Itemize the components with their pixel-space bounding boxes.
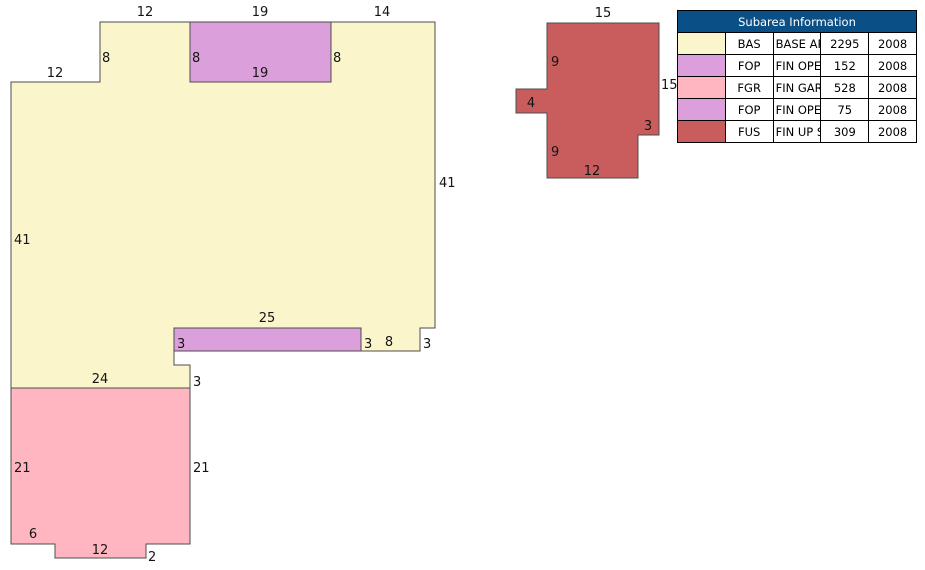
- dimension-label: 41: [439, 176, 456, 191]
- dimension-label: 8: [192, 51, 200, 66]
- subarea-color-swatch: [678, 33, 726, 55]
- dimension-label: 21: [14, 461, 31, 476]
- subarea-description: FIN OPEN PORCH: [773, 99, 821, 121]
- subarea-color-swatch: [678, 121, 726, 143]
- subarea-area: 2295: [821, 33, 869, 55]
- subarea-area: 152: [821, 55, 869, 77]
- dimension-label: 4: [527, 96, 535, 111]
- subarea-table: Subarea Information BASBASE AREA22952008…: [677, 10, 917, 143]
- dimension-label: 14: [374, 5, 391, 20]
- dimension-label: 8: [385, 335, 393, 350]
- subarea-row-bas: BASBASE AREA22952008: [678, 33, 917, 55]
- dimension-label: 6: [29, 527, 37, 542]
- dimension-label: 21: [193, 461, 210, 476]
- dimension-label: 9: [551, 145, 559, 160]
- dimension-label: 19: [252, 5, 269, 20]
- subarea-table-header-row: Subarea Information: [678, 11, 917, 33]
- dimension-label: 12: [137, 5, 154, 20]
- sketch-canvas: 1219148128198414125338324321216122159415…: [0, 0, 925, 570]
- subarea-area: 75: [821, 99, 869, 121]
- subarea-year: 2008: [869, 55, 917, 77]
- shape-fin-open-porch-mid: [174, 328, 361, 351]
- dimension-label: 3: [644, 119, 652, 134]
- dimension-label: 24: [92, 372, 109, 387]
- dimension-label: 9: [551, 55, 559, 70]
- dimension-label: 12: [47, 66, 64, 81]
- dimension-label: 19: [252, 66, 269, 81]
- subarea-row-fus: FUSFIN UP STORY3092008: [678, 121, 917, 143]
- dimension-label: 41: [14, 233, 31, 248]
- subarea-code: FUS: [725, 121, 773, 143]
- subarea-description: FIN GARAGE: [773, 77, 821, 99]
- subarea-code: FOP: [725, 99, 773, 121]
- subarea-table-title: Subarea Information: [678, 11, 917, 33]
- dimension-label: 3: [364, 337, 372, 352]
- dimension-label: 15: [595, 6, 612, 21]
- dimension-label: 15: [661, 78, 678, 93]
- subarea-color-swatch: [678, 99, 726, 121]
- dimension-label: 25: [259, 311, 276, 326]
- dimension-label: 3: [423, 337, 431, 352]
- subarea-color-swatch: [678, 77, 726, 99]
- dimension-label: 12: [92, 543, 109, 558]
- subarea-color-swatch: [678, 55, 726, 77]
- subarea-code: BAS: [725, 33, 773, 55]
- subarea-year: 2008: [869, 121, 917, 143]
- dimension-label: 8: [333, 51, 341, 66]
- subarea-year: 2008: [869, 77, 917, 99]
- subarea-year: 2008: [869, 99, 917, 121]
- subarea-code: FOP: [725, 55, 773, 77]
- dimension-label: 2: [148, 550, 156, 565]
- shape-fin-up-story: [516, 23, 659, 178]
- dimension-label: 8: [102, 51, 110, 66]
- subarea-row-fgr: FGRFIN GARAGE5282008: [678, 77, 917, 99]
- subarea-code: FGR: [725, 77, 773, 99]
- subarea-area: 309: [821, 121, 869, 143]
- dimension-label: 3: [177, 337, 185, 352]
- dimension-label: 3: [193, 375, 201, 390]
- dimension-label: 12: [584, 164, 601, 179]
- subarea-row-fop: FOPFIN OPEN PORCH1522008: [678, 55, 917, 77]
- subarea-description: FIN OPEN PORCH: [773, 55, 821, 77]
- subarea-description: FIN UP STORY: [773, 121, 821, 143]
- shape-fin-garage: [11, 388, 190, 558]
- subarea-row-fop: FOPFIN OPEN PORCH752008: [678, 99, 917, 121]
- subarea-area: 528: [821, 77, 869, 99]
- subarea-description: BASE AREA: [773, 33, 821, 55]
- subarea-year: 2008: [869, 33, 917, 55]
